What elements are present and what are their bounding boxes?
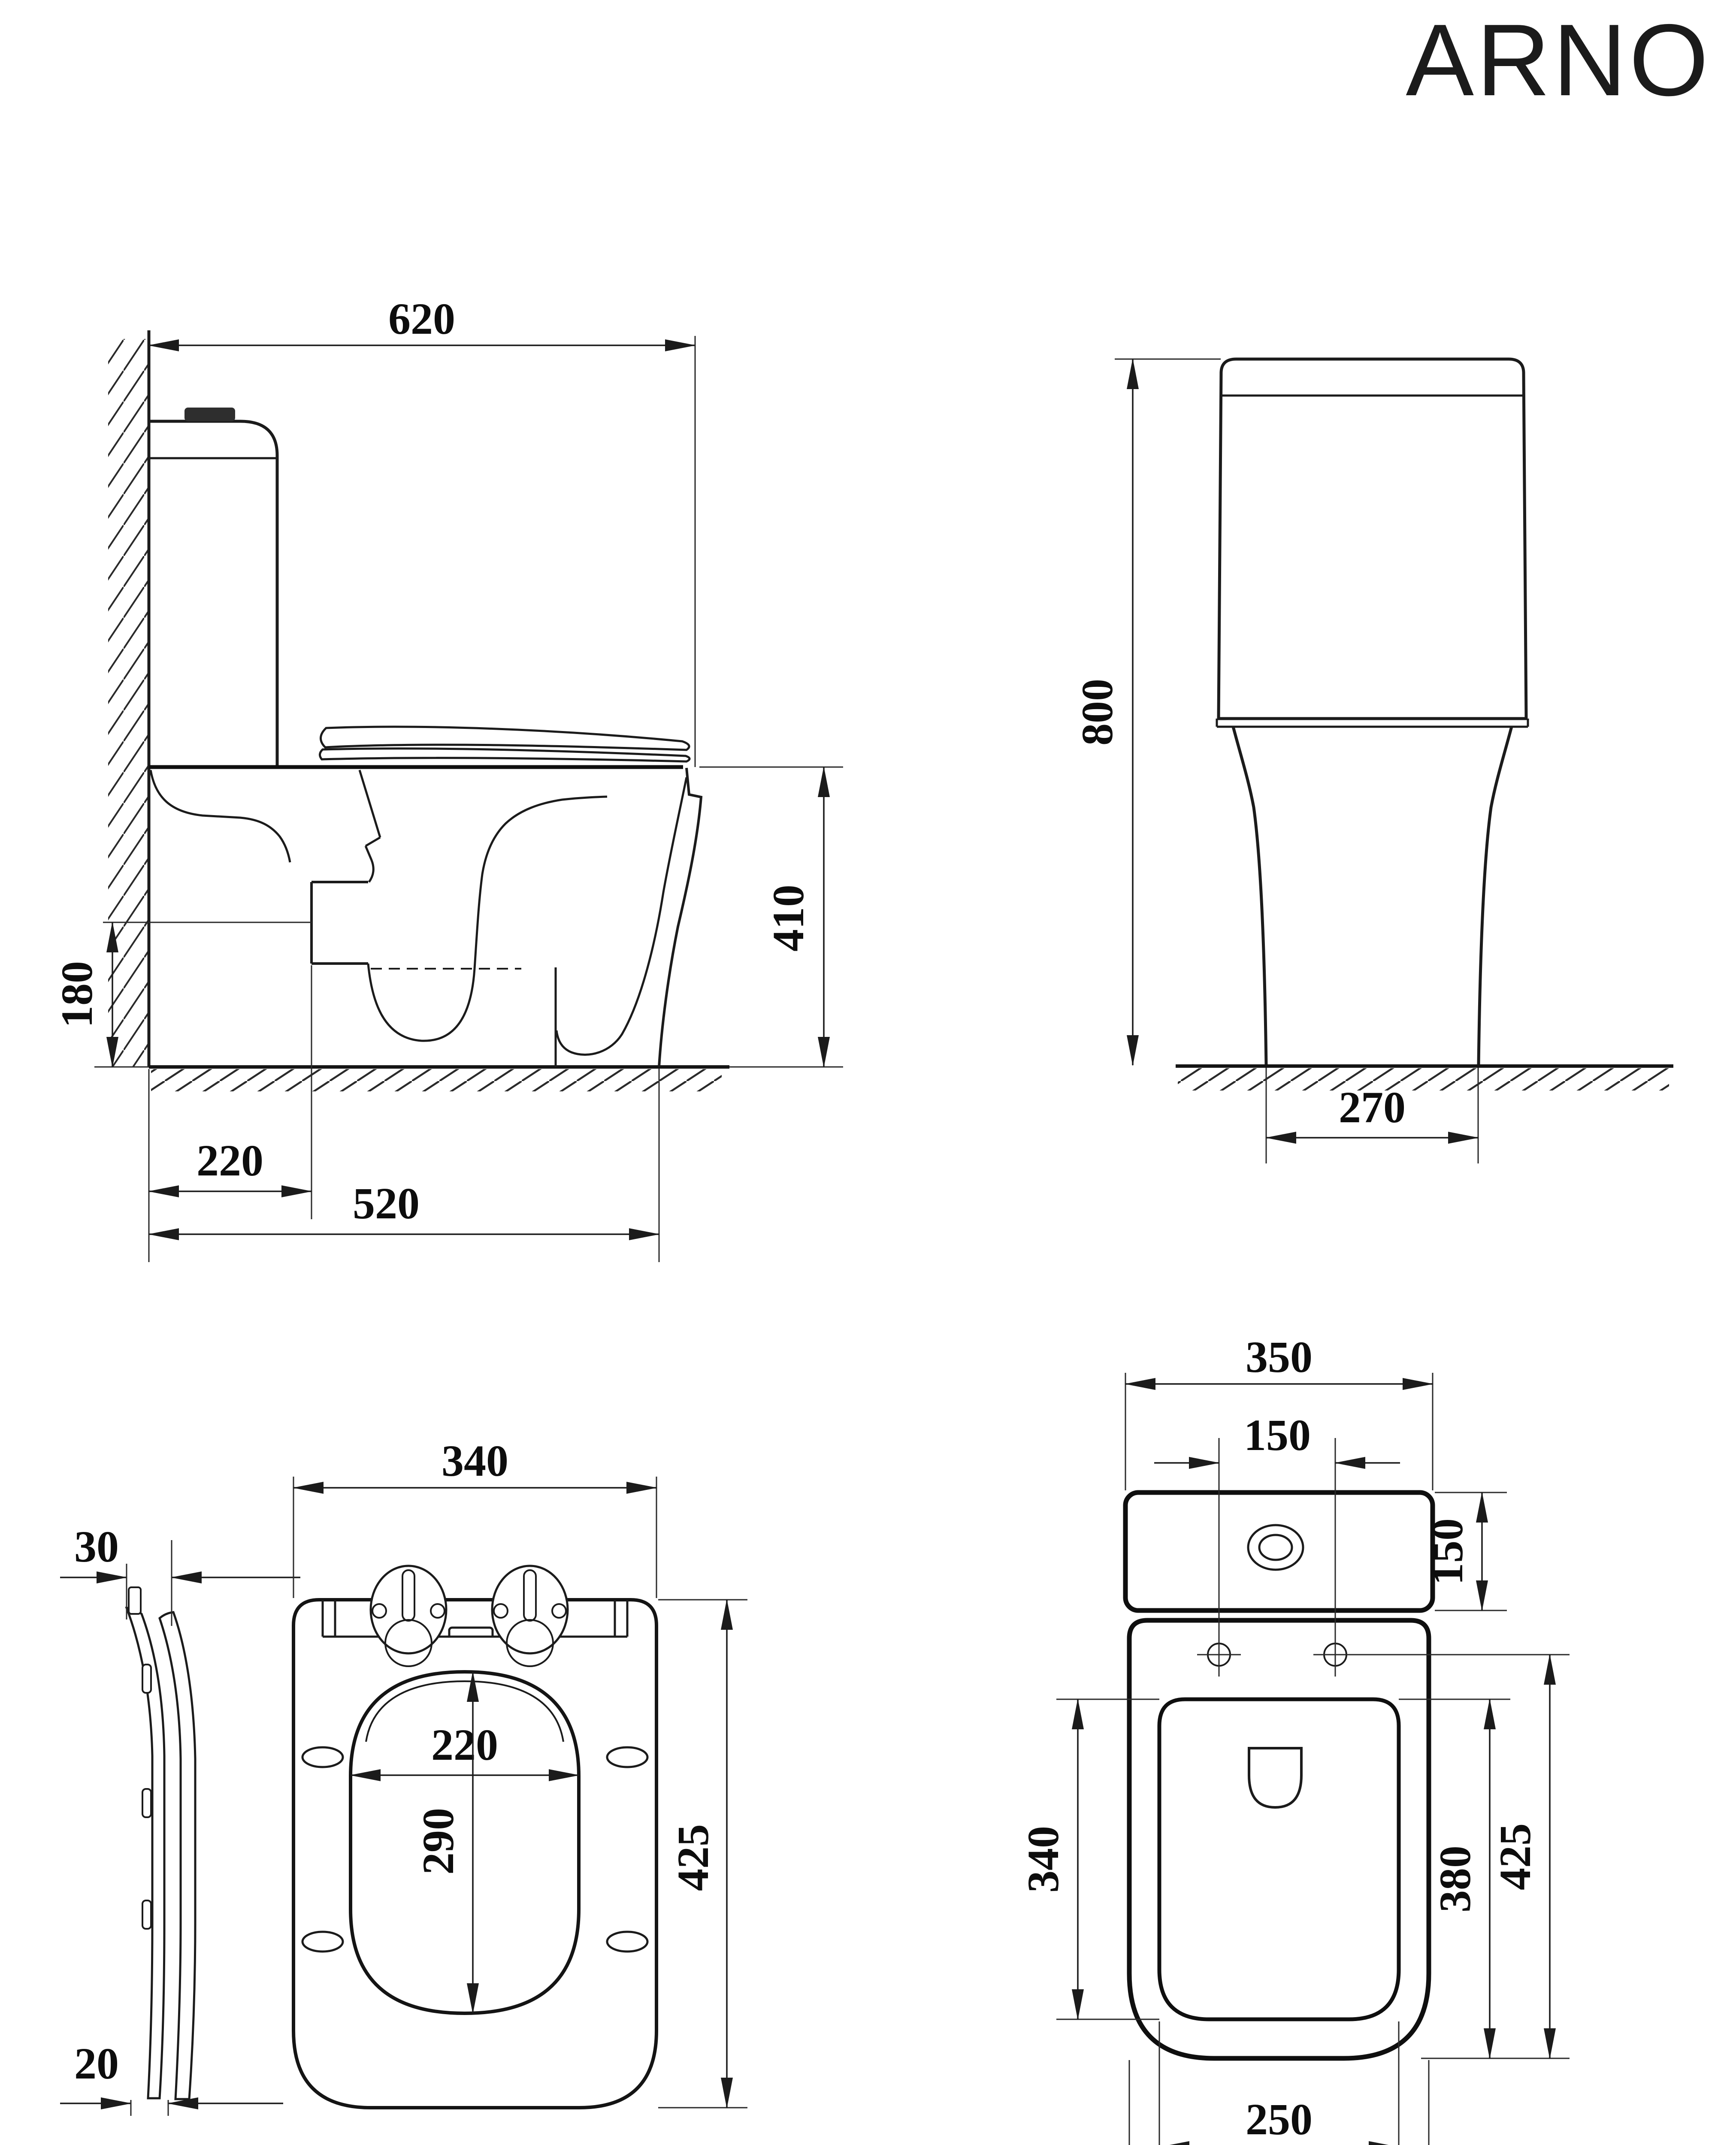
dim-410-label: 410: [764, 885, 813, 952]
hinge-tab: [142, 1900, 151, 1929]
bowl-front-inner-wall: [556, 777, 687, 1055]
tank-front: [1219, 359, 1526, 719]
hinge-hole: [552, 1604, 566, 1618]
hinge-bar-notch: [449, 1628, 493, 1637]
floor-hatching: [151, 1069, 722, 1091]
plan-outline: [1125, 1492, 1433, 2058]
bowl-back-wall: [360, 770, 380, 882]
dim-250-label: 250: [1246, 2095, 1313, 2144]
dim-150-depth-label: 150: [1423, 1518, 1472, 1585]
dim-380-label: 380: [1431, 1846, 1480, 1912]
dim-290-label: 290: [414, 1808, 463, 1875]
seat-plan: [293, 1566, 656, 2108]
dim-340-side-label: 340: [1019, 1826, 1068, 1893]
dim-20-label: 20: [74, 2039, 119, 2088]
outlet-box: [312, 882, 368, 964]
hinge-hole: [372, 1604, 386, 1618]
lid-profile: [321, 727, 689, 750]
bowl-plan: [1129, 1620, 1429, 2058]
plan-dimensions: 350 150 150 380 425 340 250: [1019, 1332, 1570, 2145]
dim-220-label: 220: [197, 1136, 263, 1185]
dim-800-label: 800: [1073, 679, 1122, 746]
hinge-slot: [524, 1570, 536, 1621]
hinge-bar: [323, 1600, 627, 1637]
seat-ring-profile: [320, 749, 690, 761]
dim-220-label: 220: [431, 1720, 498, 1770]
front-toilet-outline: [1176, 359, 1673, 1091]
side-elevation-drawing: 620 410 180 220 520: [17, 296, 880, 1283]
seat-detail-drawing: 30 20 340 220 290 425: [34, 1429, 802, 2145]
drain-outlet: [1249, 1748, 1301, 1807]
under-rim-shelf: [151, 770, 290, 862]
dim-520-label: 520: [353, 1179, 420, 1228]
dim-180-label: 180: [52, 961, 102, 1028]
side-dimensions: 620 410 180 220 520: [52, 294, 843, 1262]
dim-350-label: 350: [1246, 1332, 1313, 1382]
dim-620-label: 620: [388, 294, 455, 344]
hinge-post: [129, 1587, 141, 1614]
mounting-holes: [1197, 1633, 1357, 1677]
flush-button-inner: [1259, 1535, 1292, 1560]
hinge-slot: [402, 1570, 414, 1621]
dim-30-label: 30: [74, 1522, 119, 1571]
side-wall-and-floor: [94, 330, 843, 1091]
hinge-tab: [142, 1789, 151, 1817]
pedestal-right-edge: [1479, 727, 1512, 1065]
side-toilet-outline: [149, 408, 701, 1067]
dim-425-label: 425: [1491, 1823, 1540, 1890]
cistern-outline: [149, 421, 277, 767]
hinge-tab: [142, 1665, 151, 1693]
front-dimensions: 800 270: [1073, 359, 1478, 1163]
floor-hatching: [1178, 1068, 1669, 1091]
bumper-slot: [302, 1747, 343, 1767]
bumper-slot: [607, 1747, 647, 1767]
plan-view-drawing: 350 150 150 380 425 340 250: [995, 1330, 1639, 2145]
trap-curve: [368, 797, 607, 1041]
dim-425-label: 425: [668, 1824, 718, 1891]
dim-150-spacing-label: 150: [1244, 1411, 1311, 1460]
hinge-hole: [494, 1604, 508, 1618]
seat-outline: [293, 1600, 656, 2108]
hinge-hole: [431, 1604, 445, 1618]
technical-drawing-sheet: 620 410 180 220 520: [0, 0, 1736, 2145]
pedestal-left-edge: [1233, 727, 1266, 1065]
bumper-slot: [302, 1932, 343, 1952]
product-title: ARNO: [1406, 9, 1711, 112]
seat-profile: [127, 1587, 195, 2099]
dim-270-label: 270: [1339, 1083, 1406, 1132]
dim-340-label: 340: [442, 1436, 508, 1486]
front-elevation-drawing: 800 270: [1038, 300, 1733, 1210]
bumper-slot: [607, 1932, 647, 1952]
flush-button: [184, 408, 235, 421]
wall-hatching: [108, 339, 149, 1067]
